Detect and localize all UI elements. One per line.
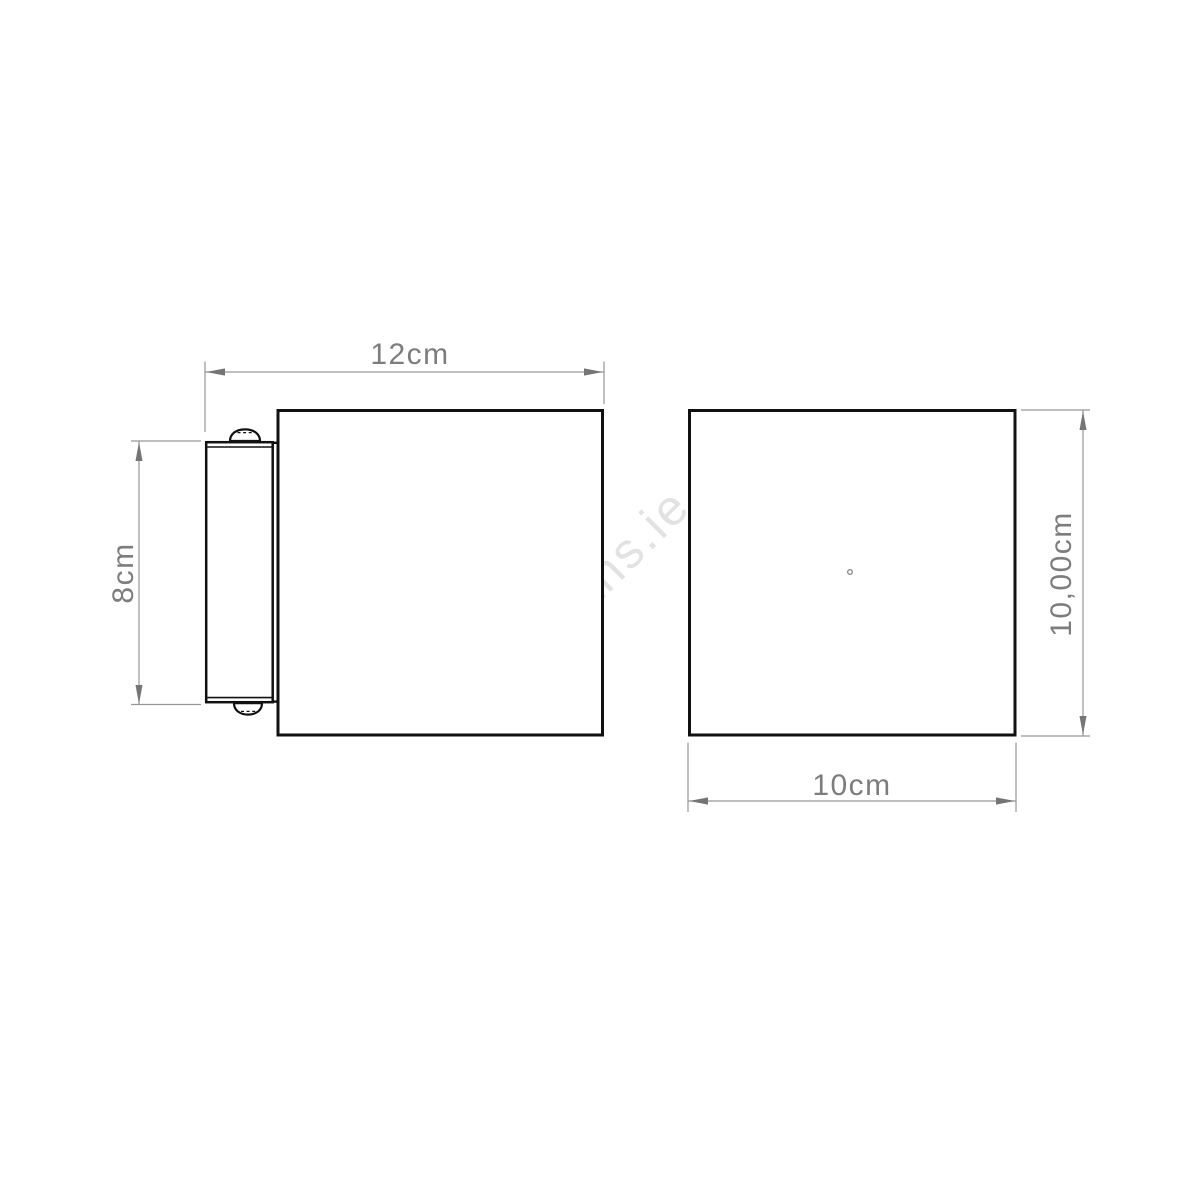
dimension-drawing: alasans.ie — [0, 0, 1200, 1200]
arrow-right-icon — [996, 797, 1015, 804]
center-marker-dot — [848, 570, 853, 575]
arrow-right-icon — [584, 368, 603, 375]
dimension-label-10cm: 10cm — [812, 769, 891, 802]
arrow-up-icon — [1080, 411, 1087, 430]
dimension-label-8cm: 8cm — [107, 542, 140, 603]
arrow-left-icon — [689, 797, 708, 804]
arrow-up-icon — [136, 442, 143, 461]
technical-drawing-canvas: alasans.ie — [0, 0, 1200, 1200]
arrow-left-icon — [206, 368, 225, 375]
side-view — [206, 411, 602, 736]
dimension-front-width: 10cm — [688, 743, 1016, 813]
side-view-body-outline — [278, 411, 603, 736]
dimension-front-height: 10,00cm — [1021, 410, 1090, 736]
dimension-label-12cm: 12cm — [370, 338, 449, 371]
mounting-bracket-outline — [206, 442, 273, 702]
front-view — [690, 411, 1016, 736]
bracket-clip-bottom — [234, 703, 262, 714]
arrow-down-icon — [1080, 716, 1087, 735]
bracket-clip-top — [230, 429, 260, 441]
dimension-bracket-height: 8cm — [107, 441, 201, 705]
arrow-down-icon — [136, 685, 143, 704]
dimension-label-10-00cm: 10,00cm — [1045, 511, 1078, 637]
